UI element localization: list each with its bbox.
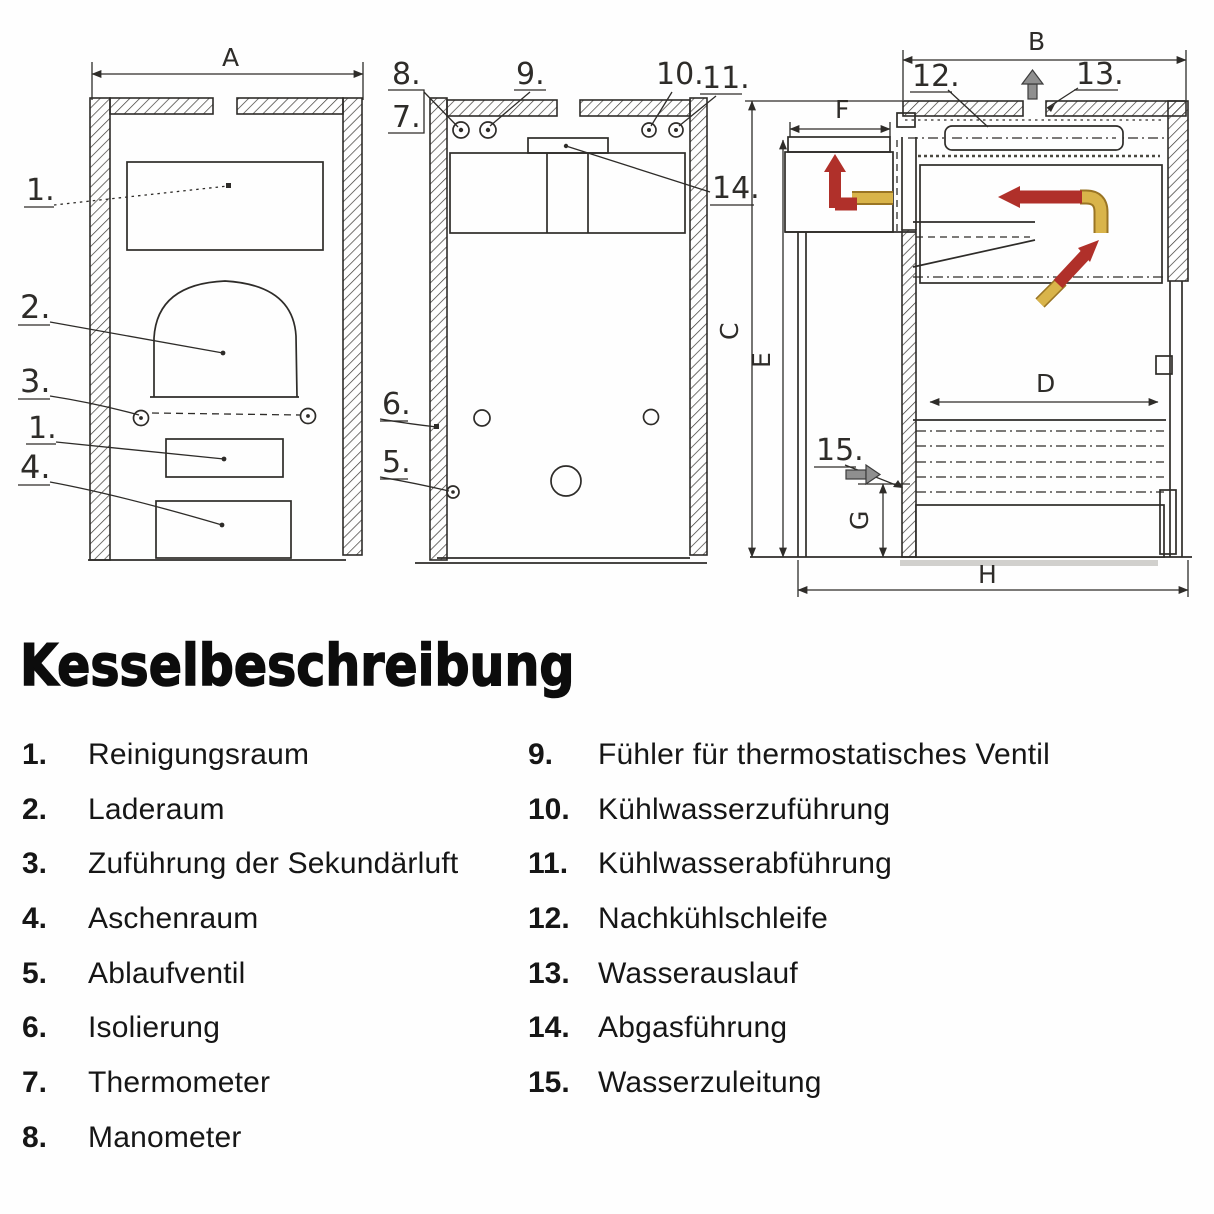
after-cooling-loop bbox=[905, 120, 1164, 156]
svg-text:11.: 11. bbox=[702, 61, 750, 96]
dimension-d: D bbox=[930, 369, 1158, 402]
door-flow-arrow bbox=[824, 154, 893, 208]
legend-number: 8. bbox=[22, 1121, 88, 1155]
legend-item-3: 3.Zuführung der Sekundärluft bbox=[22, 847, 527, 902]
legend-item-12: 12.Nachkühlschleife bbox=[528, 902, 1214, 957]
legend-label: Kühlwasserzuführung bbox=[598, 793, 890, 827]
middle-section-drawing: 8. 7. 9. 10. 11. 14. 6. bbox=[380, 57, 760, 563]
callout-4: 4. bbox=[18, 448, 224, 527]
svg-text:8.: 8. bbox=[392, 57, 421, 92]
drain-valve bbox=[447, 486, 459, 498]
legend-item-8: 8.Manometer bbox=[22, 1121, 527, 1176]
legend-item-4: 4.Aschenraum bbox=[22, 902, 527, 957]
svg-text:6.: 6. bbox=[382, 387, 411, 422]
dimension-a: A bbox=[92, 43, 363, 100]
legend-item-2: 2.Laderaum bbox=[22, 793, 527, 848]
callout-3: 3. bbox=[18, 362, 139, 415]
legend-label: Manometer bbox=[88, 1121, 242, 1155]
thermometer-manometer-ports bbox=[453, 122, 496, 138]
legend-number: 11. bbox=[528, 847, 598, 881]
dim-label-h: H bbox=[978, 560, 997, 589]
legend-label: Thermometer bbox=[88, 1066, 270, 1100]
legend-label: Wasserauslauf bbox=[598, 957, 798, 991]
legend-number: 13. bbox=[528, 957, 598, 991]
boiler-walls-front bbox=[88, 98, 362, 560]
legend-item-15: 15.Wasserzuleitung bbox=[528, 1066, 1214, 1121]
svg-text:12.: 12. bbox=[912, 59, 960, 94]
cleaning-chamber-top bbox=[127, 162, 323, 250]
page-title: Kesselbeschreibung bbox=[20, 633, 574, 699]
legend-number: 1. bbox=[22, 738, 88, 772]
base-chamber bbox=[916, 505, 1164, 557]
svg-text:2.: 2. bbox=[20, 288, 51, 326]
legend-number: 7. bbox=[22, 1066, 88, 1100]
legend-column-left: 1.Reinigungsraum 2.Laderaum 3.Zuführung … bbox=[22, 738, 527, 1176]
svg-text:4.: 4. bbox=[20, 448, 51, 486]
upper-cleaning-covers bbox=[450, 153, 685, 233]
legend-label: Isolierung bbox=[88, 1011, 220, 1045]
dimension-g: G bbox=[845, 484, 910, 557]
dim-label-f: F bbox=[835, 95, 849, 124]
legend-item-6: 6.Isolierung bbox=[22, 1011, 527, 1066]
legend-number: 4. bbox=[22, 902, 88, 936]
front-section-drawing: A 1. 2. bbox=[18, 43, 363, 560]
ash-chamber bbox=[156, 501, 291, 558]
legend-number: 12. bbox=[528, 902, 598, 936]
upper-flue-chamber bbox=[920, 165, 1162, 283]
legend-item-10: 10.Kühlwasserzuführung bbox=[528, 793, 1214, 848]
legend-number: 14. bbox=[528, 1011, 598, 1045]
dim-label-b: B bbox=[1028, 27, 1045, 56]
cooling-water-ports bbox=[642, 123, 683, 137]
callout-15: 15. bbox=[814, 433, 903, 488]
legend-label: Aschenraum bbox=[88, 902, 258, 936]
legend-label: Laderaum bbox=[88, 793, 225, 827]
legend-number: 9. bbox=[528, 738, 598, 772]
manual-page: A 1. 2. bbox=[0, 0, 1214, 1214]
legend-label: Ablaufventil bbox=[88, 957, 246, 991]
legend-item-5: 5.Ablaufventil bbox=[22, 957, 527, 1012]
dim-label-g: G bbox=[845, 511, 874, 530]
secondary-air-inlets bbox=[134, 409, 316, 426]
side-section-drawing: B bbox=[715, 27, 1192, 597]
legend-label: Kühlwasserabführung bbox=[598, 847, 892, 881]
legend-item-13: 13.Wasserauslauf bbox=[528, 957, 1214, 1012]
svg-text:15.: 15. bbox=[816, 433, 864, 468]
legend-item-14: 14.Abgasführung bbox=[528, 1011, 1214, 1066]
legend-number: 2. bbox=[22, 793, 88, 827]
svg-text:5.: 5. bbox=[382, 445, 411, 480]
legend-label: Reinigungsraum bbox=[88, 738, 309, 772]
callout-7: 7. bbox=[392, 100, 421, 135]
water-outlet-arrow bbox=[1022, 70, 1043, 99]
loading-chamber-dome bbox=[150, 281, 299, 397]
dimension-c: C bbox=[715, 101, 903, 557]
svg-text:10.: 10. bbox=[656, 57, 704, 92]
legend-label: Fühler für thermostatisches Ventil bbox=[598, 738, 1050, 772]
legend-number: 10. bbox=[528, 793, 598, 827]
legend-item-9: 9.Fühler für thermostatisches Ventil bbox=[528, 738, 1214, 793]
callout-2: 2. bbox=[18, 288, 225, 355]
legend-label: Wasserzuleitung bbox=[598, 1066, 822, 1100]
svg-text:1.: 1. bbox=[28, 411, 57, 446]
svg-text:1.: 1. bbox=[26, 173, 55, 208]
legend-number: 5. bbox=[22, 957, 88, 991]
svg-text:9.: 9. bbox=[516, 57, 545, 92]
legend-item-1: 1.Reinigungsraum bbox=[22, 738, 527, 793]
callout-1-mid: 1. bbox=[26, 411, 226, 461]
callout-12: 12. bbox=[910, 59, 988, 127]
legend-label: Nachkühlschleife bbox=[598, 902, 828, 936]
dim-label-d: D bbox=[1036, 369, 1055, 398]
legend-column-right: 9.Fühler für thermostatisches Ventil 10.… bbox=[528, 738, 1214, 1121]
boiler-diagrams: A 1. 2. bbox=[0, 0, 1214, 615]
legend-label: Abgasführung bbox=[598, 1011, 787, 1045]
water-jacket bbox=[913, 420, 1166, 492]
svg-text:7.: 7. bbox=[392, 100, 421, 135]
legend-number: 15. bbox=[528, 1066, 598, 1100]
svg-text:3.: 3. bbox=[20, 362, 51, 400]
dim-label-e: E bbox=[747, 352, 776, 368]
lower-openings bbox=[474, 410, 659, 497]
dim-label-c: C bbox=[715, 323, 744, 340]
legend-item-11: 11.Kühlwasserabführung bbox=[528, 847, 1214, 902]
svg-text:13.: 13. bbox=[1076, 57, 1124, 92]
dim-label-a: A bbox=[222, 43, 239, 72]
legend-number: 3. bbox=[22, 847, 88, 881]
legend-label: Zuführung der Sekundärluft bbox=[88, 847, 458, 881]
legend-number: 6. bbox=[22, 1011, 88, 1045]
legend-item-7: 7.Thermometer bbox=[22, 1066, 527, 1121]
